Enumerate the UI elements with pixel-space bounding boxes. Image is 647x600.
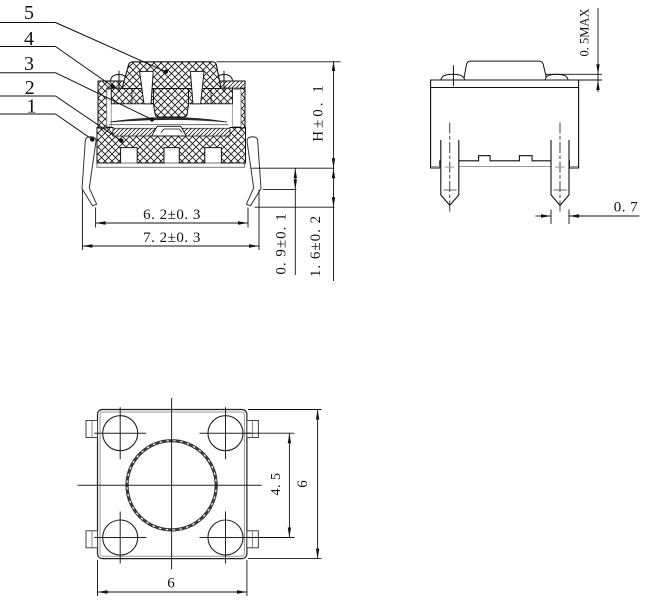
svg-text:6. 2±0. 3: 6. 2±0. 3: [143, 207, 201, 223]
svg-text:4. 5: 4. 5: [269, 473, 284, 496]
svg-text:3: 3: [24, 53, 34, 75]
svg-text:0. 9±0. 1: 0. 9±0. 1: [274, 212, 290, 274]
svg-text:1. 6±0. 2: 1. 6±0. 2: [308, 215, 324, 277]
svg-text:7. 2±0. 3: 7. 2±0. 3: [143, 230, 201, 246]
svg-text:6: 6: [295, 480, 311, 488]
svg-text:5: 5: [24, 2, 34, 24]
svg-text:0. 5MAX: 0. 5MAX: [578, 9, 592, 57]
svg-text:0. 7: 0. 7: [614, 200, 639, 216]
svg-text:H±0. 1: H±0. 1: [311, 82, 327, 142]
svg-text:6: 6: [167, 576, 175, 592]
